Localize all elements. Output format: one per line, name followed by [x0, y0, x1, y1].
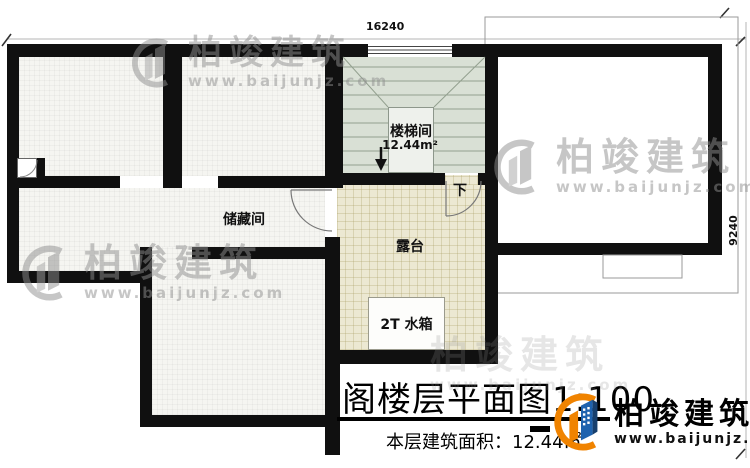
- door-arc-stair-terrace: [446, 181, 481, 216]
- door-arc-storage-terrace: [291, 190, 332, 231]
- brand-url: www.baijunjz.com: [614, 431, 750, 447]
- plan-title-text: 阁楼层平面图: [342, 380, 552, 420]
- floor-plan-canvas: 楼梯间 12.44m² 储藏间 露台 下 2T 水箱 16240 9240 柏竣…: [0, 0, 750, 468]
- stair-treads: [343, 57, 485, 165]
- roof-outline: [485, 17, 738, 293]
- brand-logo: 柏竣建筑 www.baijunjz.com: [530, 392, 750, 452]
- floor-area-label: 本层建筑面积：: [386, 432, 512, 453]
- brand-logo-bar: [530, 426, 550, 432]
- window-symbol: [368, 47, 452, 54]
- door-arc-niche: [20, 160, 37, 177]
- brand-name: 柏竣建筑: [614, 398, 750, 431]
- brand-logo-icon: [552, 392, 610, 452]
